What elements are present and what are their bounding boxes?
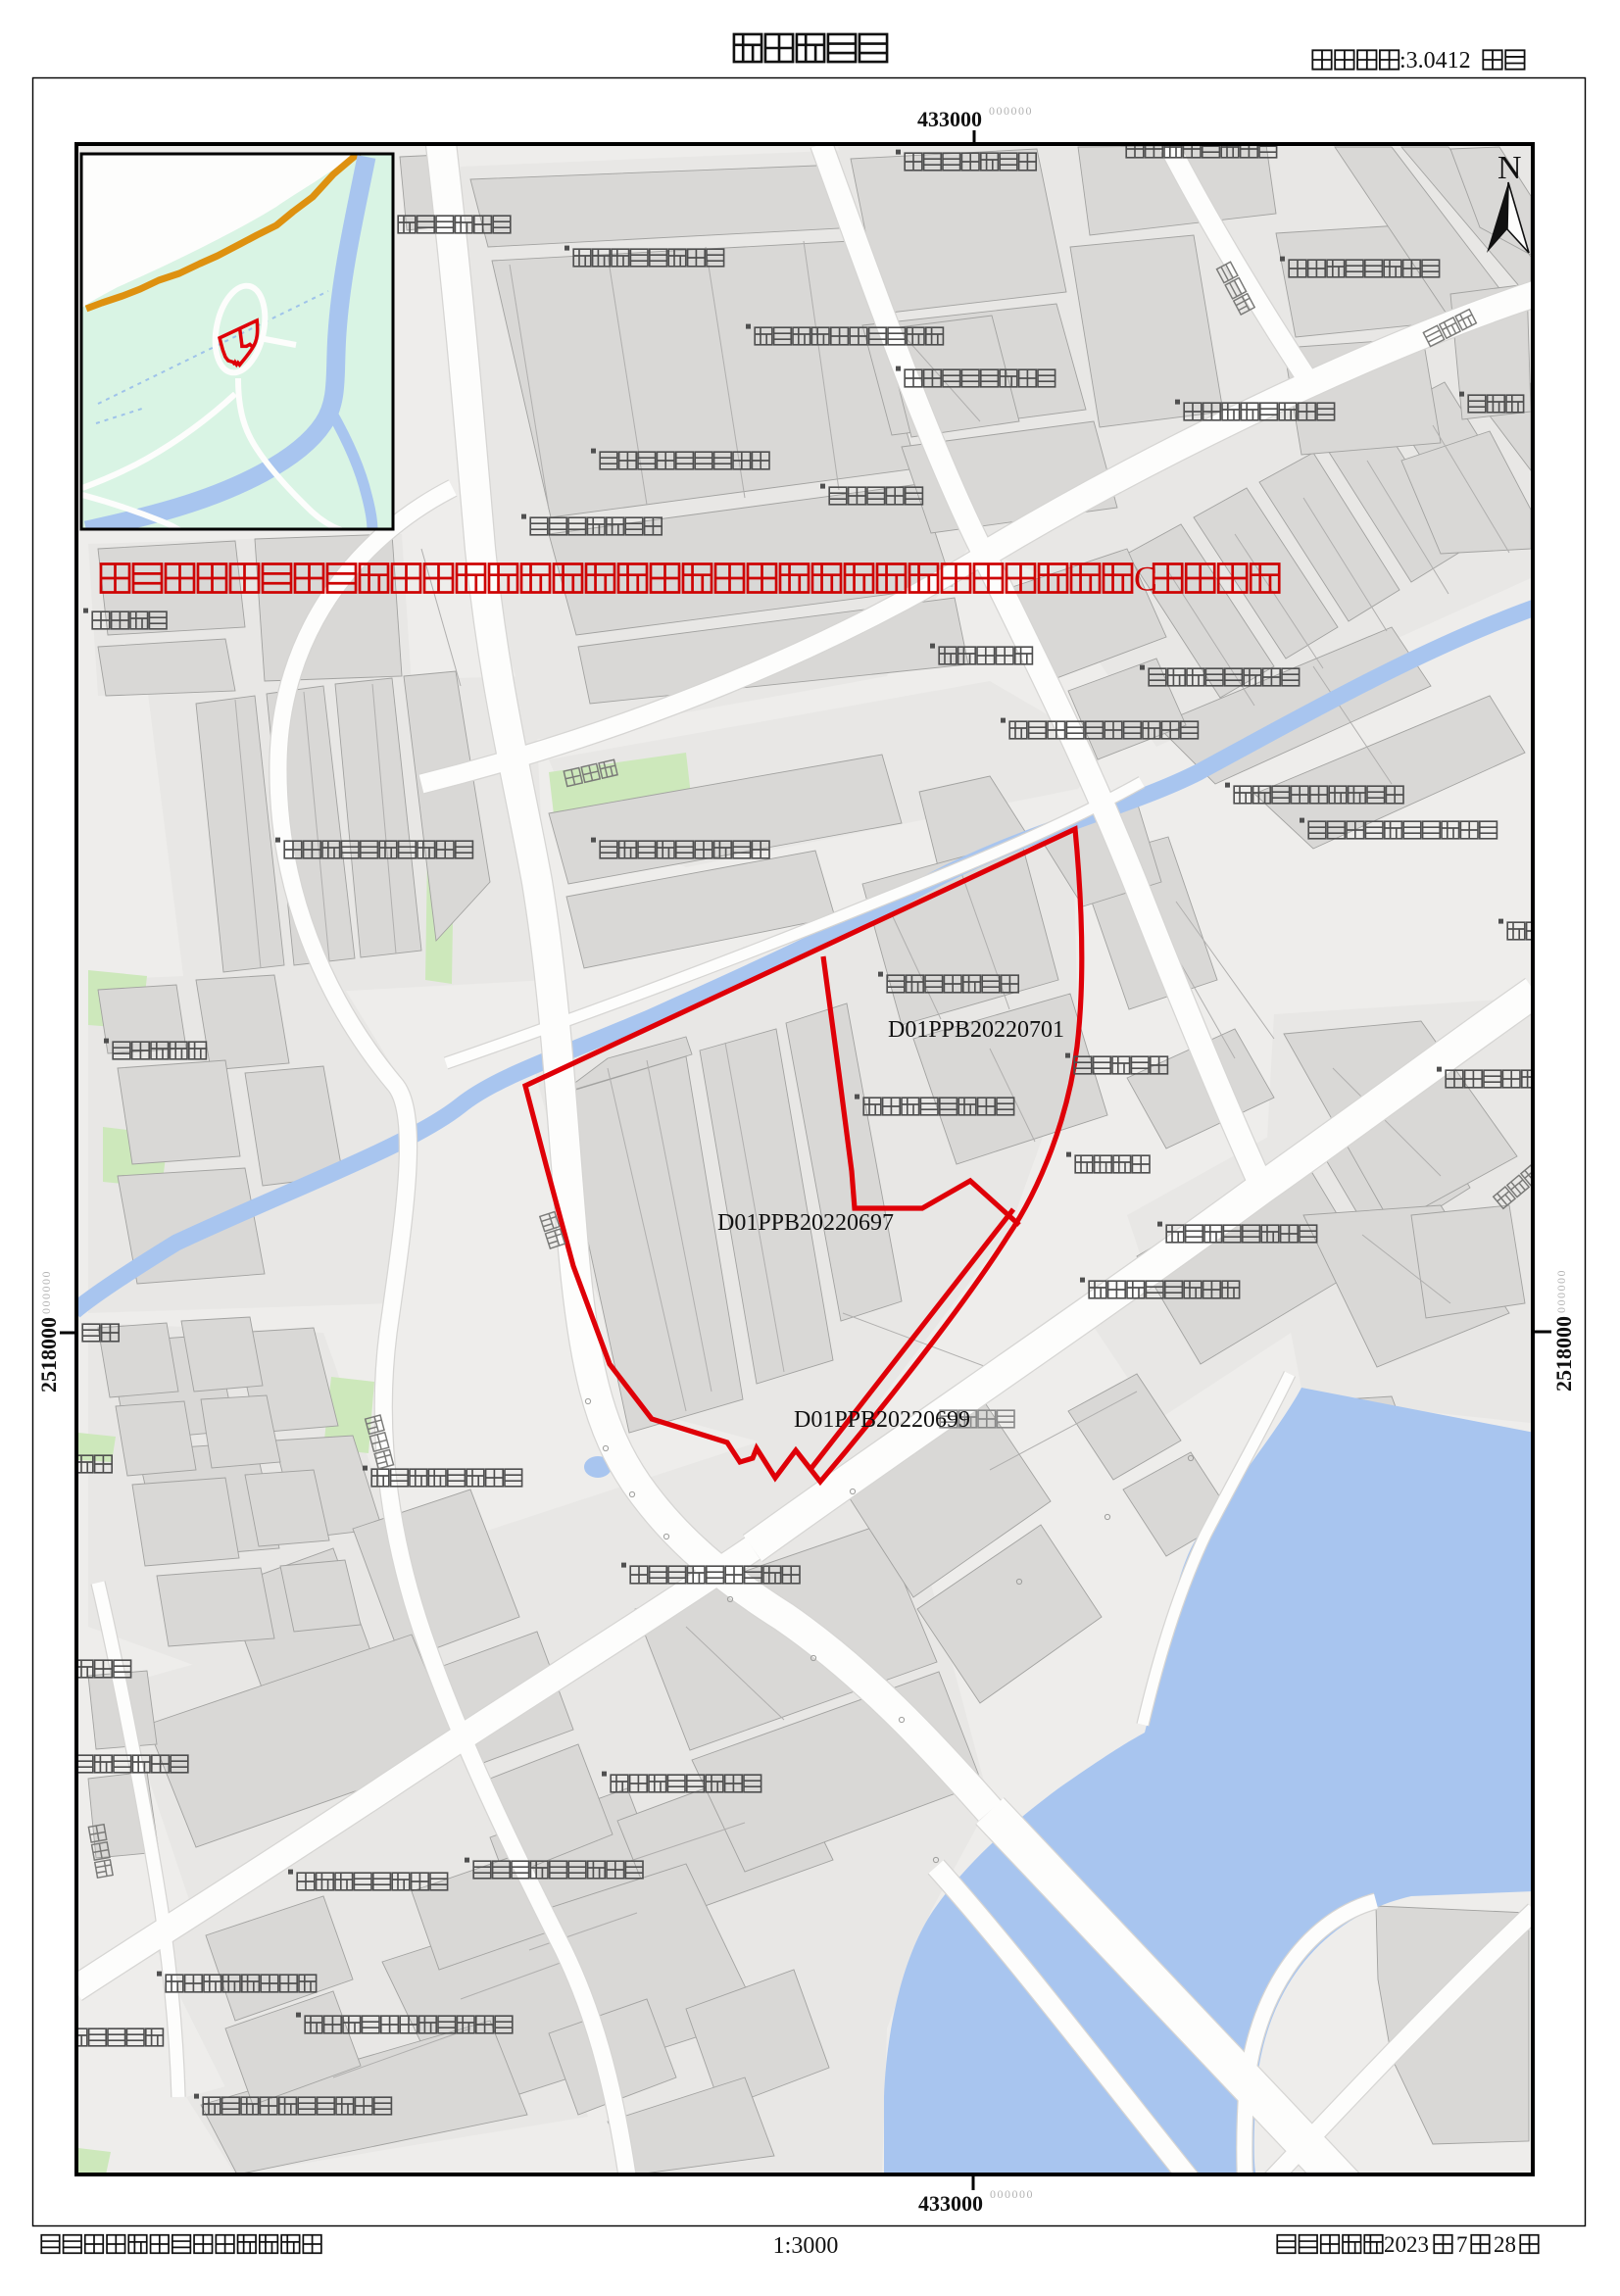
svg-text:D01PPB20220701: D01PPB20220701 — [888, 1017, 1064, 1043]
svg-text:000000: 000000 — [989, 104, 1033, 118]
svg-text:2518000: 2518000 — [36, 1317, 61, 1392]
svg-text:28: 28 — [1494, 2232, 1516, 2257]
svg-text:D01PPB20220699: D01PPB20220699 — [794, 1407, 970, 1433]
svg-text:1:3000: 1:3000 — [773, 2233, 839, 2259]
svg-text:2023: 2023 — [1384, 2232, 1429, 2257]
svg-text:7: 7 — [1456, 2232, 1468, 2257]
svg-text::3.0412: :3.0412 — [1399, 48, 1471, 73]
svg-text:000000: 000000 — [1554, 1269, 1568, 1313]
svg-text:000000: 000000 — [990, 2187, 1034, 2201]
svg-text:433000: 433000 — [917, 107, 982, 131]
svg-text:433000: 433000 — [918, 2191, 983, 2216]
svg-text:D01PPB20220697: D01PPB20220697 — [717, 1210, 894, 1236]
svg-text:N: N — [1497, 150, 1522, 186]
svg-text:000000: 000000 — [39, 1270, 53, 1314]
svg-text:2518000: 2518000 — [1551, 1316, 1576, 1392]
